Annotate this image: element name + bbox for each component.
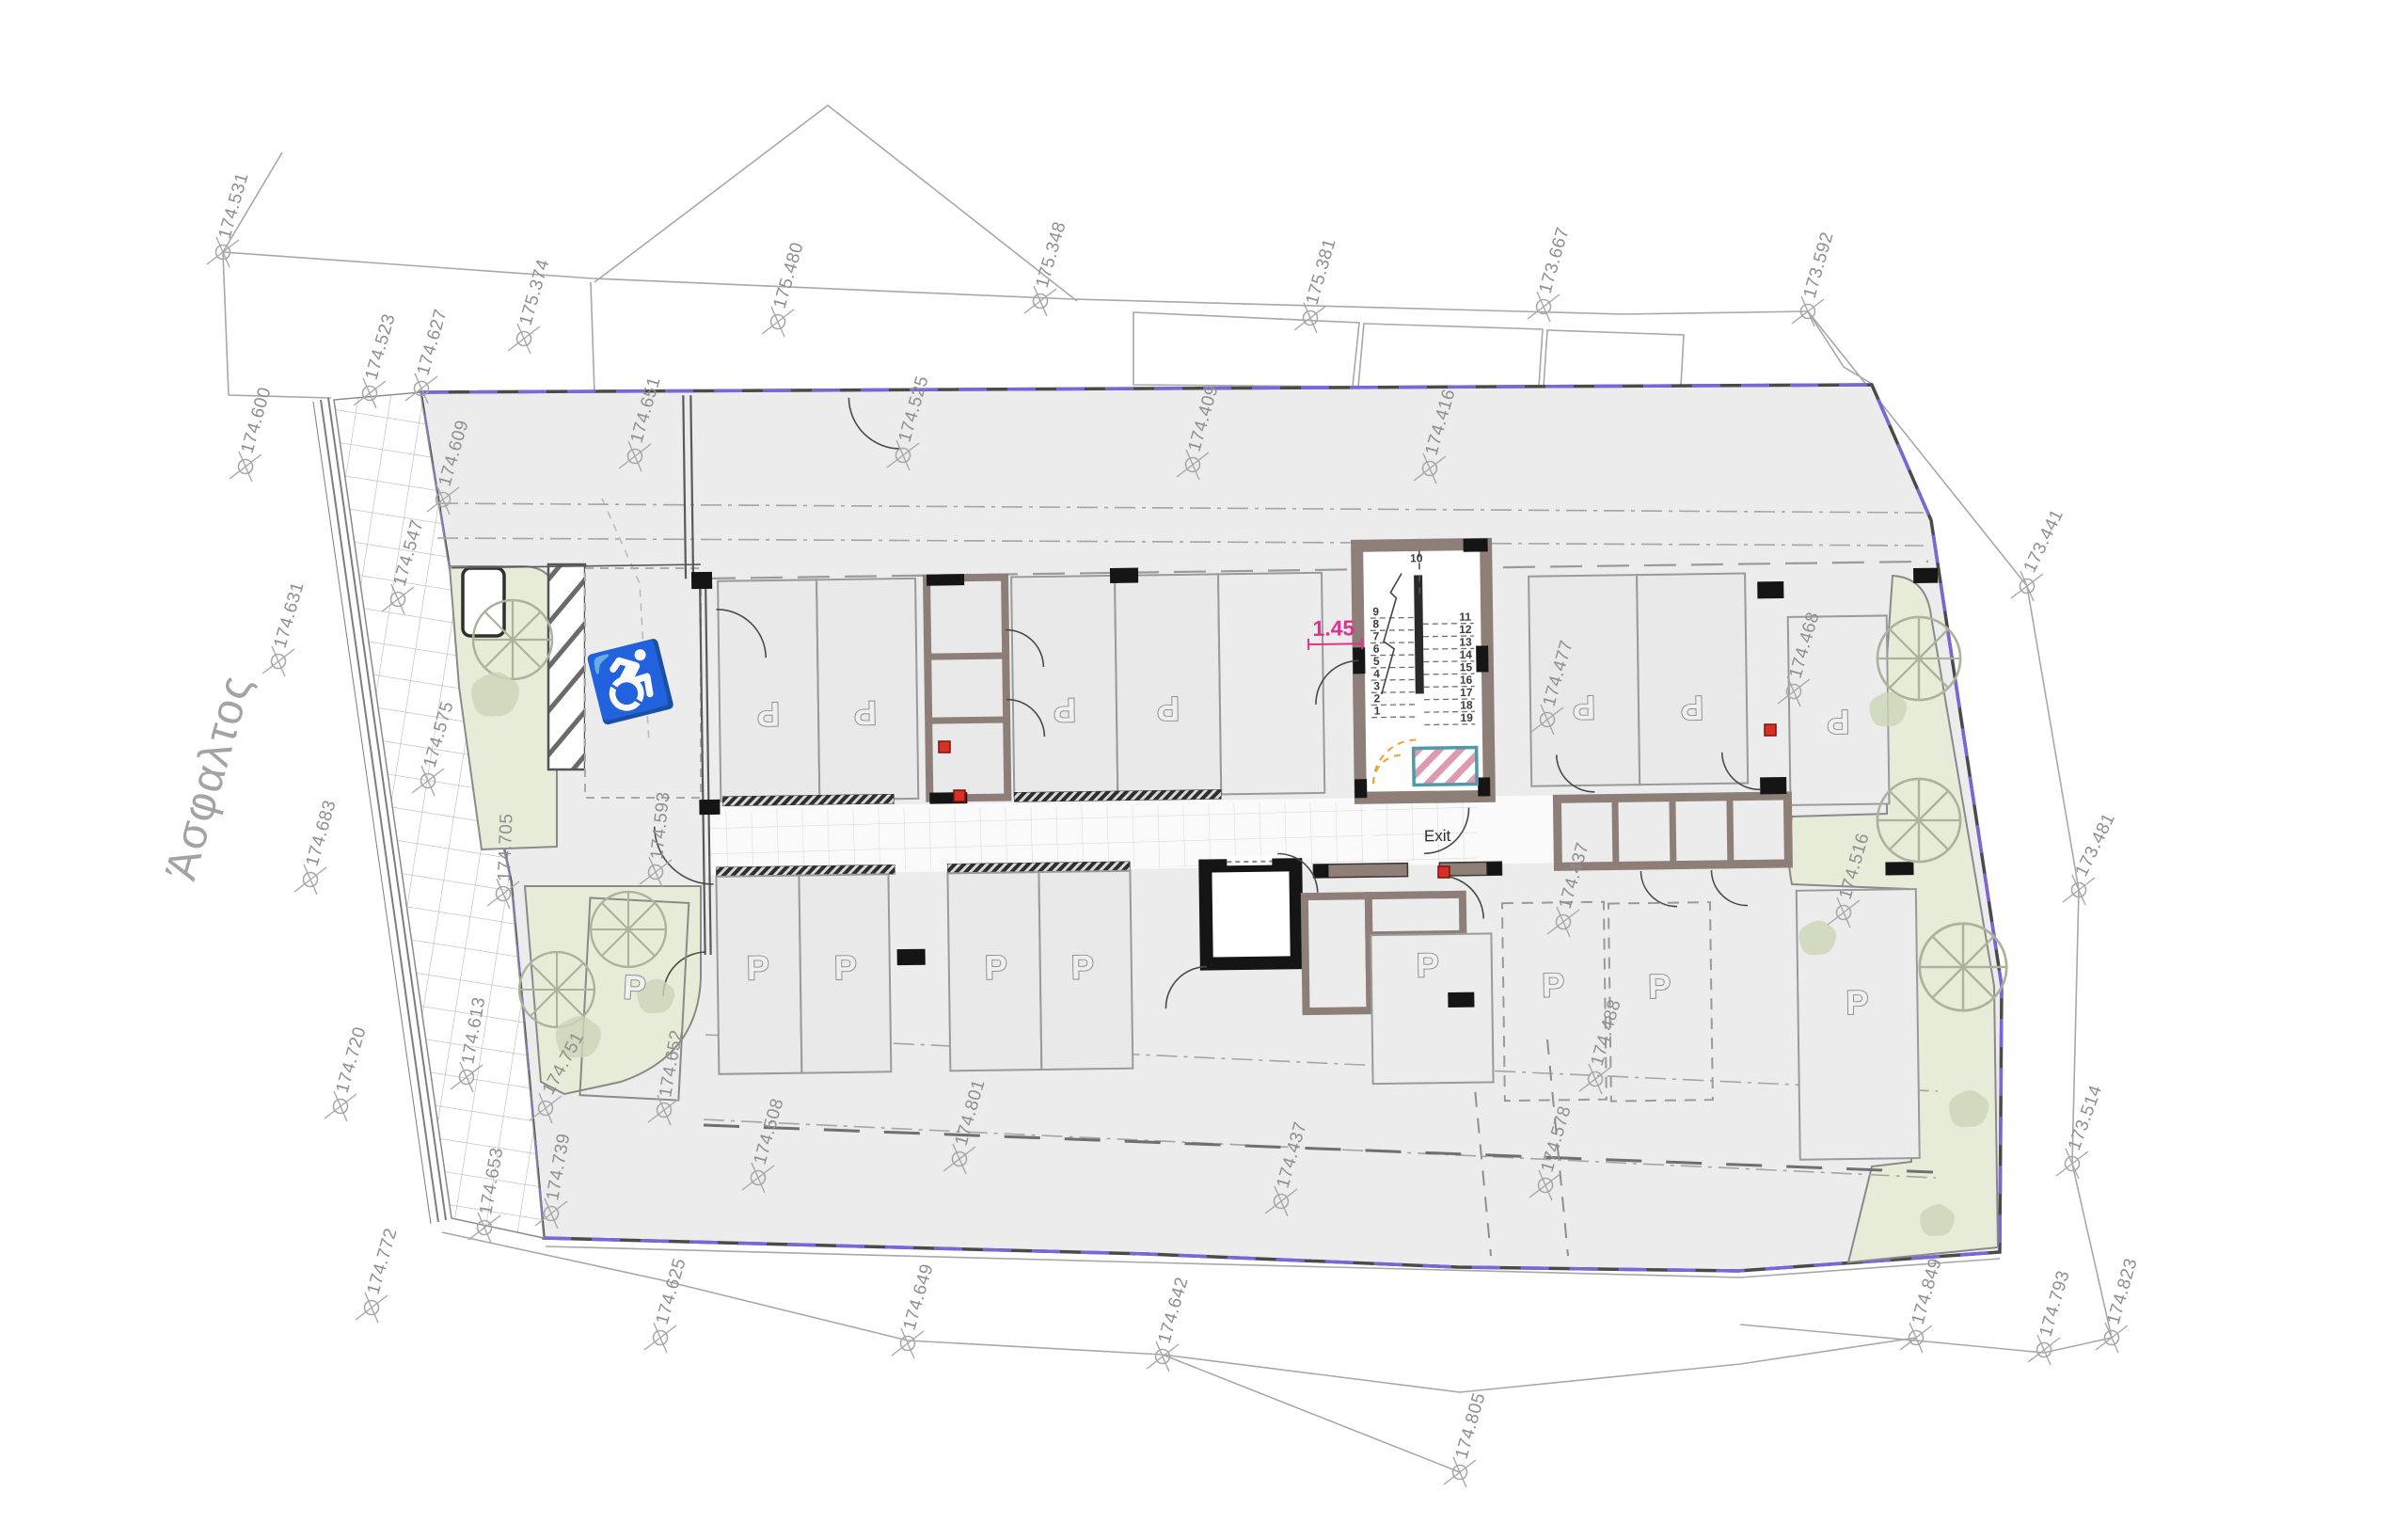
elevation-benchmark-icon bbox=[644, 1323, 676, 1353]
stair-step-number: 7 bbox=[1373, 629, 1380, 643]
tree-icon bbox=[1877, 779, 1960, 862]
utility-red-point bbox=[939, 741, 950, 753]
parking-space-letter: P bbox=[757, 695, 781, 734]
road-name-label: Άσφαλτος bbox=[155, 669, 261, 885]
elevation-benchmark-icon bbox=[1528, 292, 1560, 322]
elevation-benchmark-icon bbox=[892, 1328, 924, 1358]
elevation-benchmark-icon bbox=[2011, 571, 2043, 601]
tree-icon bbox=[1877, 617, 1960, 700]
stair-step-number: 13 bbox=[1459, 635, 1472, 648]
elevation-label: 173.667 bbox=[1536, 225, 1574, 295]
stair-step-number: 16 bbox=[1460, 674, 1473, 687]
tree-icon bbox=[519, 952, 594, 1027]
stair-step-number: 3 bbox=[1373, 679, 1380, 692]
elevation-label: 174.793 bbox=[2036, 1268, 2074, 1339]
elevation-label: 174.683 bbox=[303, 798, 341, 868]
elevation-label: 174.849 bbox=[1909, 1256, 1946, 1326]
parking-space-letter: P bbox=[1827, 703, 1850, 741]
stair-step-number: 1 bbox=[1374, 705, 1381, 718]
elevation-label: 174.631 bbox=[271, 579, 309, 650]
elevation-label: 173.514 bbox=[2065, 1083, 2106, 1153]
elevation-benchmark-icon bbox=[262, 646, 294, 676]
stair-step-number: 8 bbox=[1372, 617, 1379, 630]
stair-step-number: 9 bbox=[1372, 605, 1379, 618]
parking-space-letter: P bbox=[1417, 945, 1440, 984]
utility-red-point bbox=[1765, 724, 1776, 736]
parking-space-letter: P bbox=[1542, 965, 1565, 1004]
elevation-benchmark-icon bbox=[508, 324, 540, 354]
elevation-label: 174.720 bbox=[333, 1024, 371, 1095]
elevation-label: 174.625 bbox=[653, 1256, 690, 1326]
elevation-label: 174.523 bbox=[362, 311, 400, 382]
ramp-hatch-strip bbox=[548, 564, 585, 769]
utility-red-point bbox=[1438, 866, 1450, 878]
tree-icon bbox=[473, 600, 552, 679]
stair-step-number: 15 bbox=[1460, 660, 1473, 674]
elevation-benchmark-icon bbox=[1294, 303, 1326, 333]
parking-space-letter: P bbox=[1681, 689, 1704, 727]
elevation-label: 173.441 bbox=[2020, 506, 2068, 576]
storage-column-top bbox=[927, 574, 1007, 804]
elevation-label: 174.772 bbox=[364, 1226, 402, 1296]
elevation-label: 173.481 bbox=[2072, 810, 2120, 880]
stair-lift-hatch bbox=[1414, 748, 1478, 785]
elevation-label: 175.381 bbox=[1303, 236, 1340, 307]
parking-space-letter: P bbox=[985, 948, 1008, 987]
parking-space-letter: P bbox=[1071, 947, 1095, 986]
elevation-benchmark-icon bbox=[356, 1293, 388, 1323]
stair-step-number: 6 bbox=[1373, 643, 1380, 656]
parking-space-letter: P bbox=[1648, 967, 1671, 1006]
elevation-benchmark-icon bbox=[294, 865, 326, 895]
elevation-benchmark-icon bbox=[1024, 286, 1056, 316]
tree-icon bbox=[1920, 924, 2006, 1010]
stair-step-number: 19 bbox=[1460, 711, 1473, 724]
stair-width-dimension: 1.45 bbox=[1312, 615, 1354, 641]
elevation-label: 174.649 bbox=[900, 1261, 938, 1332]
parking-space-letter: P bbox=[1157, 690, 1180, 728]
elevation-benchmark-icon bbox=[2096, 1323, 2128, 1353]
elevation-benchmark-icon bbox=[762, 307, 794, 337]
stair-step-number: 18 bbox=[1460, 698, 1473, 711]
elevation-benchmark-icon bbox=[325, 1091, 356, 1121]
top-parking-spaces bbox=[718, 564, 1889, 819]
elevation-label: 175.374 bbox=[516, 257, 554, 327]
floor-plan-page: PPPPPPPPPPPPPPP 987654321111213141516171… bbox=[0, 0, 2408, 1539]
parking-space-letter: P bbox=[1846, 983, 1869, 1022]
parking-space-letter: P bbox=[1053, 690, 1077, 729]
utility-red-point bbox=[954, 790, 965, 801]
elevator-shaft bbox=[1205, 855, 1297, 963]
elevation-label: 175.480 bbox=[770, 240, 808, 310]
stair-step-number: 12 bbox=[1459, 623, 1472, 636]
stair-step-number: 5 bbox=[1373, 655, 1380, 668]
parking-space-letter: P bbox=[747, 948, 770, 987]
stair-step-number: 17 bbox=[1460, 686, 1473, 699]
parking-space-letter: P bbox=[854, 693, 878, 732]
elevation-label: 173.592 bbox=[1800, 230, 1838, 300]
elevation-benchmark-icon bbox=[1900, 1323, 1932, 1353]
stair-step-number: 2 bbox=[1373, 691, 1380, 705]
stair-step-number: 11 bbox=[1459, 611, 1471, 624]
elevation-label: 174.823 bbox=[2104, 1256, 2142, 1326]
stair-top-number: 10 bbox=[1410, 551, 1423, 564]
elevation-label: 175.348 bbox=[1033, 219, 1070, 290]
elevation-label: 174.642 bbox=[1155, 1275, 1193, 1345]
elevation-label: 174.627 bbox=[414, 307, 451, 377]
stair-step-number: 14 bbox=[1459, 648, 1472, 661]
tree-icon bbox=[591, 892, 666, 967]
elevation-benchmark-icon bbox=[230, 452, 261, 482]
stair-step-number: 4 bbox=[1373, 667, 1380, 680]
elevation-label: 174.531 bbox=[215, 170, 253, 241]
parking-space-letter: P bbox=[834, 948, 858, 987]
parking-space-letter: P bbox=[623, 967, 647, 1007]
elevation-label: 174.805 bbox=[1452, 1390, 1490, 1461]
elevation-benchmark-icon bbox=[1444, 1457, 1476, 1487]
site-plan-drawing: PPPPPPPPPPPPPPP 987654321111213141516171… bbox=[0, 0, 2408, 1539]
parking-space-letter: P bbox=[1573, 689, 1596, 727]
exit-label: Exit bbox=[1424, 827, 1451, 845]
elevation-label: 174.705 bbox=[495, 813, 517, 881]
